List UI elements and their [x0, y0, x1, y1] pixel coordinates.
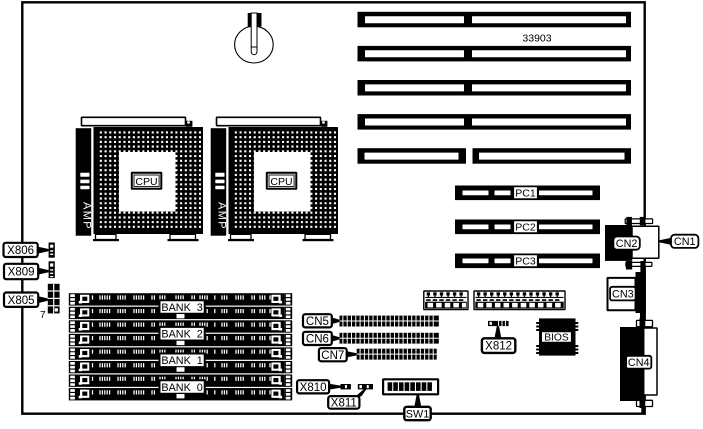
svg-text:X812: X812: [485, 341, 512, 353]
svg-text:CN3: CN3: [612, 288, 634, 300]
svg-text:CN6: CN6: [306, 334, 329, 346]
svg-text:BIOS: BIOS: [544, 332, 569, 343]
svg-text:CPU: CPU: [270, 176, 292, 188]
svg-text:BANK 1: BANK 1: [161, 355, 202, 367]
svg-text:X810: X810: [300, 382, 327, 394]
svg-text:SW1: SW1: [406, 408, 429, 420]
svg-text:PC1: PC1: [515, 188, 536, 200]
svg-text:BANK 3: BANK 3: [161, 302, 202, 314]
svg-text:7: 7: [40, 310, 46, 321]
svg-text:PC3: PC3: [515, 256, 536, 268]
svg-text:CN5: CN5: [306, 316, 329, 328]
svg-text:CN4: CN4: [628, 357, 650, 369]
svg-text:CN1: CN1: [674, 236, 696, 248]
svg-text:CPU: CPU: [135, 176, 157, 188]
svg-text:X809: X809: [8, 267, 35, 279]
svg-text:BANK 2: BANK 2: [161, 329, 202, 341]
svg-text:X811: X811: [331, 398, 357, 410]
svg-text:33903: 33903: [522, 33, 551, 45]
svg-text:AMP: AMP: [81, 202, 93, 230]
svg-text:CN7: CN7: [321, 350, 344, 362]
svg-text:PC2: PC2: [515, 222, 536, 234]
svg-text:CN2: CN2: [616, 238, 638, 250]
svg-text:BANK 0: BANK 0: [161, 382, 202, 394]
svg-text:X806: X806: [7, 245, 34, 257]
svg-text:AMP: AMP: [216, 202, 228, 230]
svg-text:X805: X805: [8, 295, 35, 307]
